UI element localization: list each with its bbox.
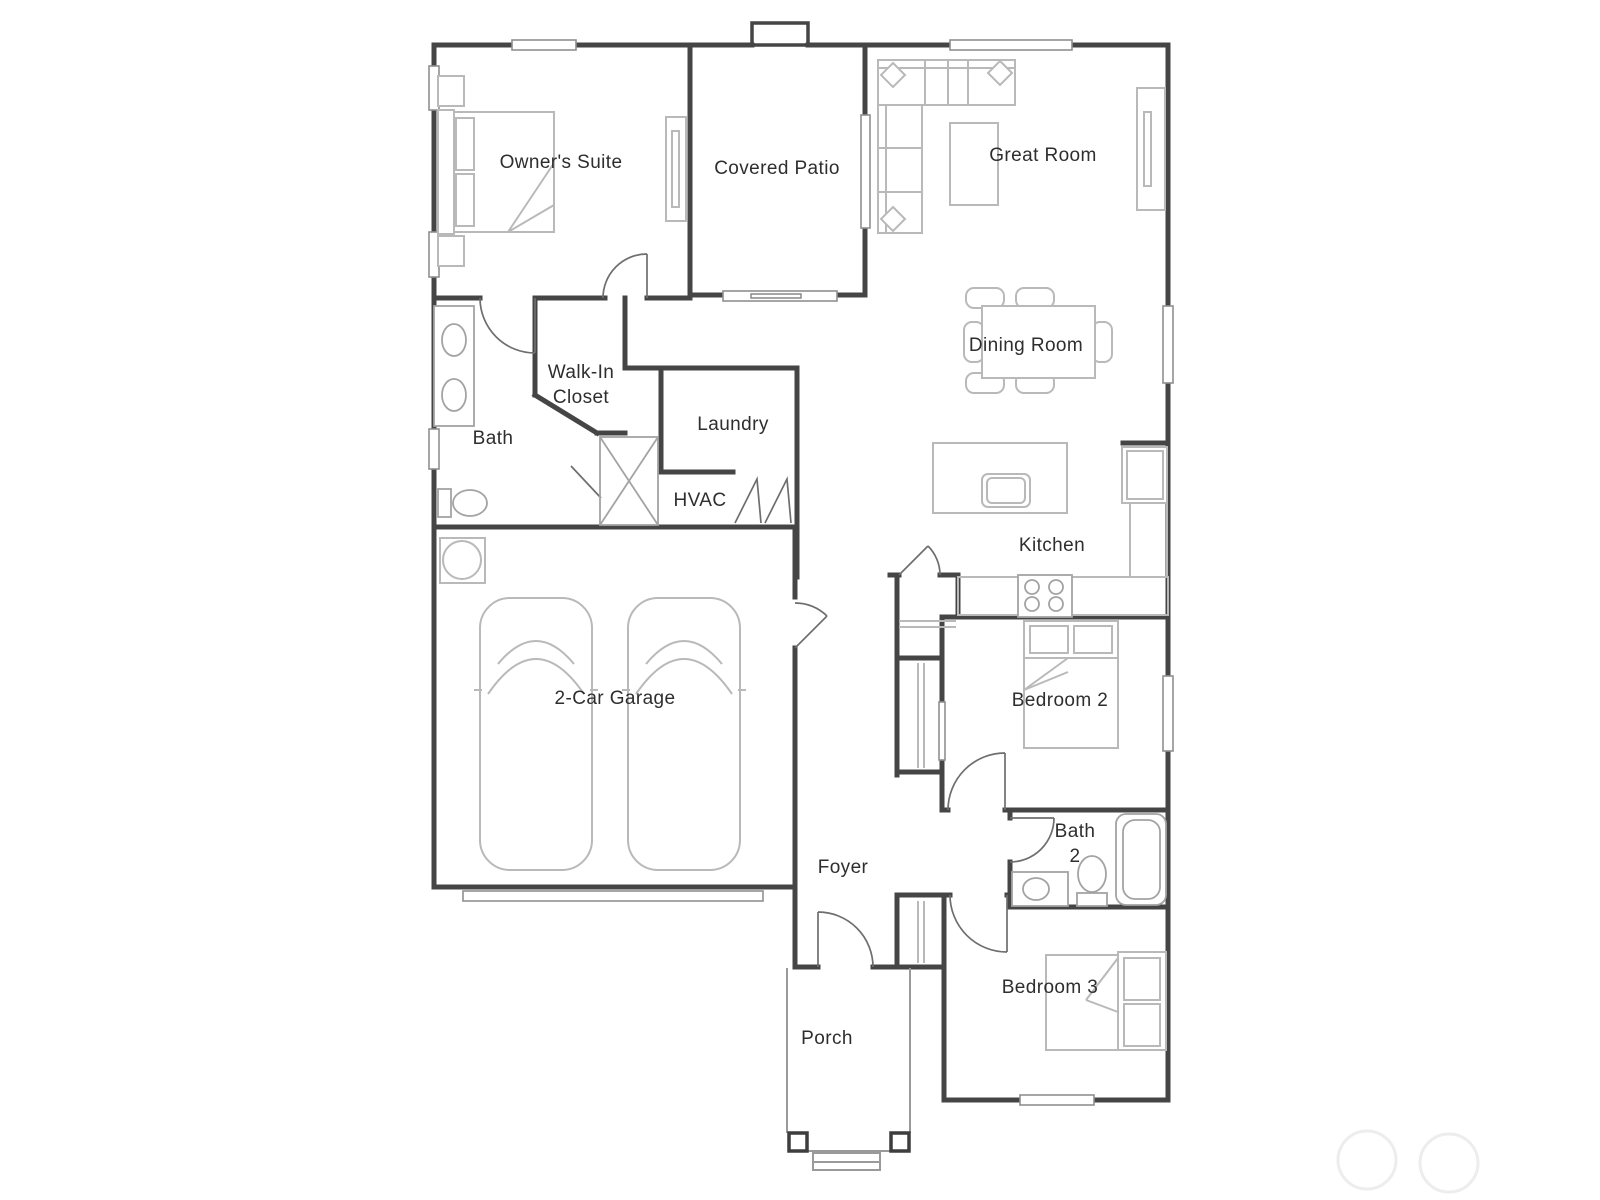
walk-in-closet-label: Walk-In (548, 362, 615, 383)
garage-label: 2-Car Garage (555, 688, 676, 709)
bedroom2-label: Bedroom 2 (1012, 690, 1109, 711)
window-icon (1020, 1095, 1094, 1105)
patio-slider-panel (751, 294, 801, 298)
stove-icon (1018, 575, 1072, 617)
closet-shelving (899, 621, 956, 963)
floor-plan-page: Owner's Suite Covered Patio Great Room D… (0, 0, 1600, 1200)
window-icon (950, 40, 1072, 50)
counter (1130, 503, 1167, 577)
water-heater-icon (440, 538, 485, 583)
pillow (456, 118, 474, 170)
bedroom3-bed-icon (1046, 952, 1166, 1050)
porch-pillar-icon (891, 1133, 909, 1151)
pantry-door-icon (899, 546, 940, 575)
watermark-circles (1338, 1131, 1478, 1192)
owners-suite-door-icon (603, 254, 647, 298)
bedroom2-closet-slider-icon (939, 702, 945, 760)
tv-console-icon (1137, 88, 1165, 210)
closet-rod (918, 663, 924, 768)
window-icon (1163, 676, 1173, 751)
window-icon (1163, 306, 1173, 383)
hvac-label: HVAC (674, 490, 727, 511)
bedroom2-door-icon (948, 753, 1005, 810)
foyer-label: Foyer (818, 857, 869, 878)
window-icon (429, 429, 439, 469)
headboard (438, 110, 454, 234)
tv-icon (1144, 112, 1151, 186)
garage-entry-door-icon (795, 603, 827, 648)
mattress (1046, 955, 1118, 1050)
porch-steps-icon (813, 1153, 880, 1170)
pillow (1030, 626, 1068, 653)
toilet-icon (438, 489, 487, 517)
kitchen-fixtures (933, 443, 1168, 617)
owners-suite-label: Owner's Suite (500, 152, 623, 173)
pillow (1074, 626, 1112, 653)
garage-door-icon (463, 891, 763, 901)
hvac-unit-icon (600, 437, 658, 525)
bathtub-icon (1116, 814, 1166, 905)
front-door-icon (818, 912, 873, 967)
closet-rod (918, 901, 924, 963)
walk-in-closet-label: Closet (553, 387, 610, 408)
pillow (1124, 958, 1160, 1000)
bedroom3-label: Bedroom 3 (1002, 977, 1099, 998)
hvac-bifold-door-icon (735, 479, 791, 523)
vanity-icon (1012, 872, 1068, 906)
patio-chimney (752, 23, 808, 45)
covered-patio-label: Covered Patio (714, 158, 840, 179)
laundry-label: Laundry (697, 414, 769, 435)
owners-bath-door-icon (480, 298, 535, 353)
pillow (456, 174, 474, 226)
great-room-label: Great Room (989, 145, 1096, 166)
pantry-shelf (899, 621, 956, 627)
nightstand-icon (438, 236, 464, 266)
nightstand-icon (438, 76, 464, 106)
porch-structure (787, 968, 910, 1170)
pillow (1124, 1004, 1160, 1046)
bedroom2-bed-icon (1024, 621, 1118, 748)
porch-label: Porch (801, 1028, 853, 1049)
room-labels: Owner's Suite Covered Patio Great Room D… (473, 145, 1109, 1049)
bath-label: Bath (473, 428, 514, 449)
patio-slider-icon (861, 115, 870, 228)
suite-patio-window-icon (666, 117, 686, 221)
toilet-icon (1077, 856, 1107, 906)
window-icon (512, 40, 576, 50)
bedroom3-door-icon (950, 895, 1007, 952)
car-icon (474, 598, 598, 870)
dining-room-label: Dining Room (969, 335, 1083, 356)
fridge-icon (1122, 447, 1167, 503)
shower-door-icon (571, 466, 601, 498)
bath2-label: Bath (1055, 821, 1096, 842)
car-icon (622, 598, 746, 870)
bath2-door-icon (1010, 818, 1054, 862)
porch-pillar-icon (789, 1133, 807, 1151)
floor-plan-drawing: Owner's Suite Covered Patio Great Room D… (0, 0, 1600, 1200)
kitchen-label: Kitchen (1019, 535, 1085, 556)
bath2-label: 2 (1070, 846, 1081, 867)
